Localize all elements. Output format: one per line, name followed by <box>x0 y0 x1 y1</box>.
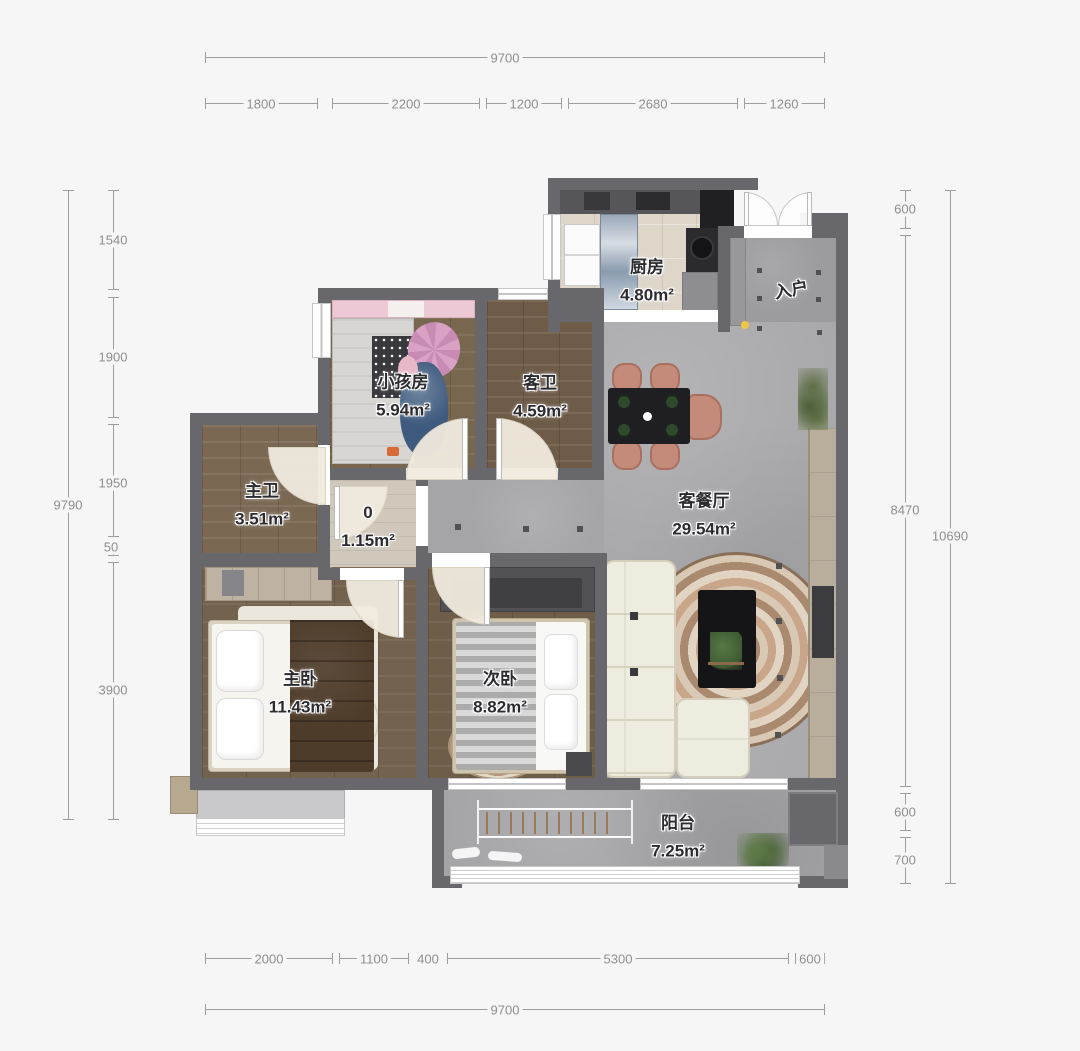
guest-bath-door-leaf <box>496 418 502 480</box>
dim-tick <box>63 190 74 191</box>
sofa-remote <box>630 668 638 676</box>
dim-tick <box>900 830 911 831</box>
entry-door-arc-left <box>744 192 778 226</box>
dim-tick <box>900 883 911 884</box>
door-handle-dot <box>741 321 749 329</box>
room-name: 次卧 <box>473 665 527 690</box>
dim-top-seg4: 2680 <box>636 97 671 112</box>
dim-tick <box>561 98 562 109</box>
ceiling-spotlight <box>816 270 821 275</box>
hallway-door-opening <box>416 486 428 546</box>
wall <box>718 226 730 332</box>
sofa-chaise <box>676 698 750 778</box>
wall <box>190 413 330 425</box>
dim-tick <box>317 98 318 109</box>
drying-rack-hangers <box>486 812 616 834</box>
second-bedroom-door-leaf <box>484 567 490 625</box>
room-label-guest-bath: 客卫 4.59m² <box>513 369 567 422</box>
drying-rack-post <box>477 800 479 844</box>
room-name: 阳台 <box>651 809 705 834</box>
wall <box>812 226 836 238</box>
dim-left-total: 9790 <box>51 498 86 513</box>
dim-tick <box>900 228 911 229</box>
dim-tick <box>108 190 119 191</box>
second-bed-pillow <box>544 694 578 750</box>
ceiling-spotlight <box>757 296 762 301</box>
kitchen-opening <box>604 310 718 322</box>
wall <box>432 790 444 888</box>
dim-left-seg1: 1540 <box>96 233 131 248</box>
room-label-master-bath: 主卫 3.51m² <box>235 477 289 530</box>
dim-tick <box>824 52 825 63</box>
room-name: 主卫 <box>235 477 289 502</box>
ceiling-spotlight <box>757 268 762 273</box>
second-bed-pillow <box>544 634 578 690</box>
room-area: 7.25m² <box>651 842 705 862</box>
bay-window-glass <box>196 818 345 836</box>
coffee-table-tray <box>708 662 744 665</box>
dim-tick <box>63 819 74 820</box>
table-centerpiece <box>643 412 652 421</box>
entry-shoe-cabinet <box>730 232 746 326</box>
wall <box>730 226 744 238</box>
dim-tick <box>900 786 911 787</box>
dim-top-total: 9700 <box>488 51 523 66</box>
ceiling-spotlight <box>577 526 583 532</box>
dim-tick <box>824 98 825 109</box>
room-area: 3.51m² <box>235 510 289 530</box>
ceiling-spotlight <box>777 675 783 681</box>
master-bed-pillow <box>216 630 264 692</box>
dim-bottom-seg3: 400 <box>414 952 442 967</box>
dim-bottom-seg1: 2000 <box>252 952 287 967</box>
room-label-second-bedroom: 次卧 8.82m² <box>473 665 527 718</box>
dining-chair <box>612 440 642 470</box>
dim-left-seg2: 1900 <box>96 350 131 365</box>
dim-tick <box>205 52 206 63</box>
dim-tick <box>205 953 206 964</box>
dim-tick <box>108 424 119 425</box>
dim-tick <box>108 555 119 556</box>
drying-rack-post <box>631 800 633 844</box>
wall <box>548 178 758 190</box>
hallway-door-leaf <box>334 486 340 540</box>
dining-chair <box>650 440 680 470</box>
room-label-balcony: 阳台 7.25m² <box>651 809 705 862</box>
room-area: 5.94m² <box>376 401 430 421</box>
living-balcony-door <box>640 778 788 790</box>
dim-tick <box>447 953 448 964</box>
dim-tick <box>339 953 340 964</box>
wall <box>836 213 848 888</box>
dim-tick <box>945 190 956 191</box>
dim-tick <box>824 953 825 964</box>
kids-room-top-window <box>498 288 548 300</box>
room-name: 客餐厅 <box>672 487 735 512</box>
ceiling-spotlight <box>776 563 782 569</box>
washing-machine-door <box>690 236 714 260</box>
dim-right-seg1: 600 <box>891 202 919 217</box>
room-area: 4.59m² <box>513 402 567 422</box>
dim-tick <box>744 98 745 109</box>
table-plant <box>618 396 630 408</box>
dim-top-seg5: 1260 <box>767 97 802 112</box>
second-bedroom-door-opening <box>432 553 490 567</box>
balcony-railing-window <box>450 866 800 884</box>
master-bedroom-door-opening <box>340 568 404 580</box>
master-bedroom-door-leaf <box>398 580 404 638</box>
entry-door-leaf-right <box>807 192 812 226</box>
room-area: 29.54m² <box>672 520 735 540</box>
dim-tick <box>479 98 480 109</box>
ceiling-spotlight <box>757 326 762 331</box>
dim-tick <box>900 837 911 838</box>
dim-bottom-seg5: 600 <box>796 952 824 967</box>
dim-bottom-seg2: 1100 <box>357 952 391 967</box>
room-name: 小孩房 <box>376 368 430 393</box>
dim-tick <box>945 883 956 884</box>
dim-top-seg2: 2200 <box>389 97 424 112</box>
table-plant <box>666 424 678 436</box>
dim-tick <box>205 98 206 109</box>
room-area: 4.80m² <box>620 286 674 306</box>
ceiling-spotlight <box>817 330 822 335</box>
range-hood <box>584 192 610 210</box>
dim-bottom-seg4: 5300 <box>601 952 636 967</box>
wall <box>595 553 607 790</box>
kids-room-left-window <box>312 303 331 358</box>
dim-tick <box>486 98 487 109</box>
ceiling-spotlight <box>455 524 461 530</box>
dim-tick <box>900 793 911 794</box>
dim-top-seg1: 1800 <box>244 97 279 112</box>
wall <box>190 413 202 567</box>
ceiling-spotlight <box>776 618 782 624</box>
wall <box>190 567 202 790</box>
second-bedroom-balcony-door <box>448 778 566 790</box>
ceiling-spotlight <box>816 297 821 302</box>
cooktop <box>636 192 670 210</box>
kids-room-door-leaf <box>462 418 468 480</box>
ceiling-spotlight <box>775 732 781 738</box>
dim-tick <box>108 297 119 298</box>
room-name: 0 <box>341 503 395 523</box>
room-area: 11.43m² <box>269 698 331 718</box>
dim-tick <box>108 819 119 820</box>
floorplan-canvas: 9700 1800 2200 1200 2680 1260 9790 1540 … <box>0 0 1080 1051</box>
room-name: 厨房 <box>620 253 674 278</box>
wall <box>475 298 487 470</box>
dim-tick <box>108 536 119 537</box>
room-label-living-dining: 客餐厅 29.54m² <box>672 487 735 540</box>
dim-tick <box>737 98 738 109</box>
dim-bottom-total: 9700 <box>488 1003 523 1018</box>
wall <box>190 778 450 790</box>
dim-tick <box>332 98 333 109</box>
dim-right-seg4: 700 <box>891 853 919 868</box>
toy-item <box>387 447 399 456</box>
room-area: 1.15m² <box>341 531 395 551</box>
dim-left-seg5: 3900 <box>96 683 131 698</box>
dim-tick <box>108 417 119 418</box>
ceiling-spotlight <box>523 526 529 532</box>
dim-tick <box>108 289 119 290</box>
dim-tick <box>900 235 911 236</box>
master-bed-pillow <box>216 698 264 760</box>
room-label-kitchen: 厨房 4.80m² <box>620 253 674 306</box>
table-plant <box>618 424 630 436</box>
drying-rack-rail <box>478 836 633 838</box>
sofa <box>604 560 676 778</box>
dim-tick <box>900 190 911 191</box>
drying-rack-rail <box>478 808 633 810</box>
kitchen-window <box>543 214 561 280</box>
dim-tick <box>108 562 119 563</box>
room-name: 主卧 <box>269 665 331 690</box>
white-cabinet <box>564 224 600 286</box>
wall-plant <box>798 368 828 430</box>
dim-left-seg3: 1950 <box>96 476 131 491</box>
dim-left-seg4: 50 <box>101 540 121 555</box>
dim-right-total: 10690 <box>929 529 971 544</box>
dim-tick <box>824 1004 825 1015</box>
wall <box>592 298 604 480</box>
refrigerator <box>700 188 734 228</box>
room-label-master-bedroom: 主卧 11.43m² <box>269 665 331 718</box>
dim-right-seg2: 8470 <box>888 503 923 518</box>
room-label-hallway: 0 1.15m² <box>341 503 395 551</box>
dim-tick <box>788 953 789 964</box>
dim-tick <box>332 953 333 964</box>
kids-wardrobe-panel <box>388 301 424 317</box>
entry-door-threshold <box>744 226 812 238</box>
dining-chair <box>688 394 722 440</box>
room-label-kids-room: 小孩房 5.94m² <box>376 368 430 421</box>
room-name: 客卫 <box>513 369 567 394</box>
balcony-equipment-block <box>788 792 838 846</box>
table-plant <box>666 396 678 408</box>
dim-tick <box>568 98 569 109</box>
dim-right-seg3: 600 <box>891 805 919 820</box>
dim-tick <box>205 1004 206 1015</box>
wall <box>824 845 848 879</box>
master-wardrobe-box <box>222 570 244 596</box>
wall <box>190 553 330 567</box>
room-area: 8.82m² <box>473 698 527 718</box>
dim-top-seg3: 1200 <box>507 97 542 112</box>
sofa-remote <box>630 612 638 620</box>
entry-door-leaf-left <box>744 192 749 226</box>
television <box>812 586 834 658</box>
second-nightstand <box>566 752 592 776</box>
dim-tick <box>408 953 409 964</box>
